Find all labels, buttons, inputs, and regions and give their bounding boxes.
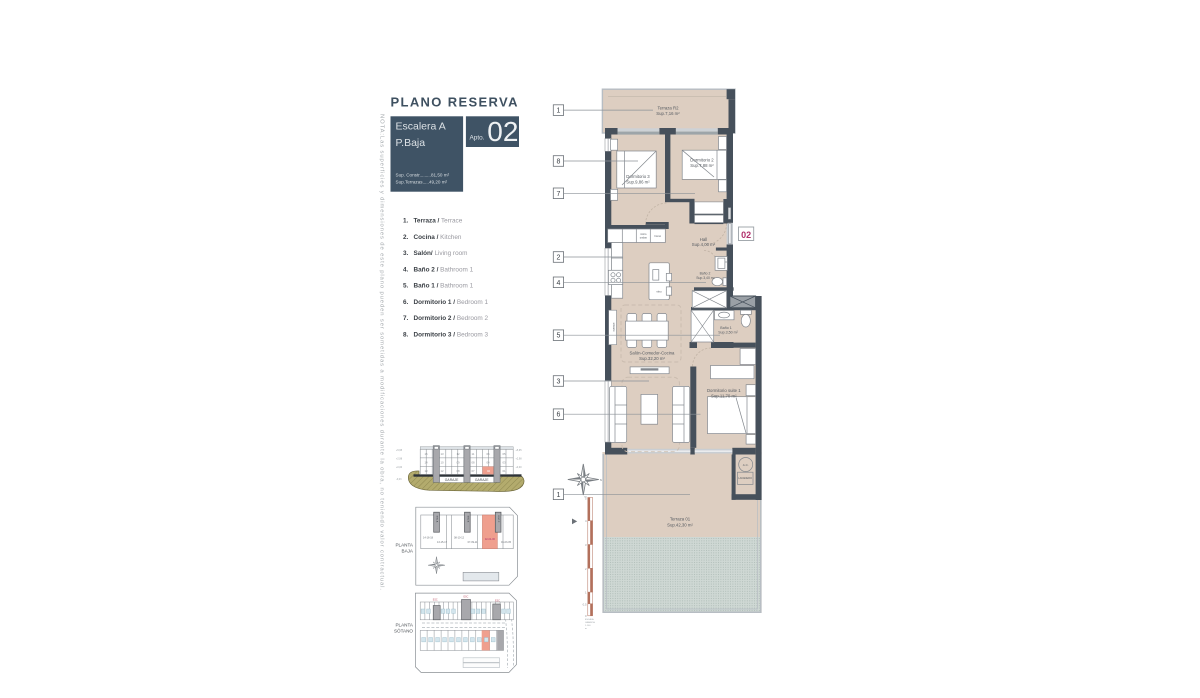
- svg-text:15: 15: [424, 452, 428, 456]
- svg-text:Terraza 01: Terraza 01: [670, 517, 691, 522]
- svg-text:ESC B: ESC B: [466, 516, 468, 523]
- svg-text:ESC: ESC: [463, 596, 468, 599]
- svg-text:Baño 1 / Bathroom 1: Baño 1 / Bathroom 1: [414, 283, 474, 290]
- svg-text:Dormitorio 2: Dormitorio 2: [690, 158, 714, 163]
- svg-text:Terraza R2: Terraza R2: [657, 106, 679, 111]
- svg-text:+5,95: +5,95: [516, 449, 523, 452]
- svg-text:PLANO RESERVA: PLANO RESERVA: [391, 94, 519, 109]
- svg-text:01: 01: [502, 469, 506, 473]
- svg-text:11: 11: [472, 452, 475, 456]
- svg-text:Sup.42,30 m²: Sup.42,30 m²: [667, 523, 693, 528]
- svg-text:P.Baja: P.Baja: [396, 137, 426, 149]
- svg-text:LAVADERO: LAVADERO: [738, 476, 752, 480]
- svg-text:3: 3: [556, 379, 560, 386]
- svg-text:08: 08: [471, 461, 475, 465]
- svg-text:14-16-18: 14-16-18: [423, 537, 434, 540]
- svg-text:5: 5: [556, 333, 560, 340]
- svg-text:Sup.3,50 m²: Sup.3,50 m²: [718, 330, 738, 334]
- svg-text:A.C.: A.C.: [743, 463, 749, 467]
- svg-text:07-09-11: 07-09-11: [468, 541, 478, 544]
- svg-text:Salón-Comedor-Cocina: Salón-Comedor-Cocina: [630, 351, 676, 356]
- svg-text:ESC A: ESC A: [436, 516, 439, 523]
- svg-text:Dormitorio 3 / Bedroom 3: Dormitorio 3 / Bedroom 3: [414, 332, 489, 339]
- svg-text:armario: armario: [612, 323, 616, 332]
- svg-text:PLANTA: PLANTA: [395, 543, 413, 548]
- svg-text:ESCALA: ESCALA: [585, 618, 594, 621]
- svg-text:Cocina / Kitchen: Cocina / Kitchen: [414, 234, 462, 241]
- svg-text:Salón/ Living room: Salón/ Living room: [414, 250, 468, 257]
- svg-text:5.: 5.: [403, 283, 409, 290]
- svg-text:12: 12: [456, 452, 460, 456]
- svg-text:m: m: [585, 628, 587, 630]
- svg-text:Terraza / Terrace: Terraza / Terrace: [414, 218, 463, 225]
- svg-text:Dormitorio 1 / Bedroom 1: Dormitorio 1 / Bedroom 1: [414, 299, 489, 306]
- svg-text:1: 1: [556, 492, 560, 499]
- svg-text:ondas: ondas: [640, 235, 648, 239]
- svg-text:Sup. Constr.........81,50 m²: Sup. Constr.........81,50 m²: [396, 173, 450, 178]
- svg-text:14: 14: [424, 461, 428, 465]
- svg-text:7.: 7.: [403, 315, 409, 322]
- svg-text:Dormitorio suite 1: Dormitorio suite 1: [707, 388, 741, 393]
- svg-text:N: N: [600, 478, 602, 482]
- svg-text:Baño 1: Baño 1: [720, 326, 731, 330]
- svg-text:13: 13: [440, 452, 444, 456]
- svg-text:Sup.4,00 m²: Sup.4,00 m²: [692, 242, 716, 247]
- svg-text:ESC: ESC: [495, 600, 500, 603]
- svg-text:+2,98: +2,98: [516, 458, 523, 461]
- svg-text:13-15-17: 13-15-17: [437, 541, 448, 544]
- svg-text:03: 03: [502, 461, 506, 465]
- svg-text:Escalera A: Escalera A: [396, 121, 446, 133]
- svg-text:SÓTANO: SÓTANO: [394, 628, 413, 634]
- svg-text:02: 02: [741, 230, 751, 240]
- svg-text:Sup.11,70 m²: Sup.11,70 m²: [711, 394, 737, 399]
- svg-text:10: 10: [440, 461, 444, 465]
- svg-text:0,5: 0,5: [583, 602, 587, 606]
- svg-text:Dormitorio 2 / Bedroom 2: Dormitorio 2 / Bedroom 2: [414, 315, 489, 322]
- svg-text:-3,03: -3,03: [396, 478, 402, 481]
- svg-text:Sup.9,86 m²: Sup.9,86 m²: [626, 180, 650, 185]
- svg-text:Sup.7,88 m²: Sup.7,88 m²: [690, 163, 714, 168]
- svg-text:7: 7: [556, 191, 560, 198]
- svg-text:02-04-06: 02-04-06: [485, 538, 496, 541]
- svg-text:GARAJE: GARAJE: [445, 478, 459, 482]
- svg-text:horno: horno: [654, 234, 661, 238]
- svg-text:08: 08: [456, 469, 460, 473]
- svg-text:3.: 3.: [403, 250, 409, 257]
- svg-text:ESC C: ESC C: [497, 516, 499, 523]
- svg-text:6.: 6.: [403, 299, 409, 306]
- svg-text:1: 1: [556, 108, 560, 115]
- svg-text:GRAFICA: GRAFICA: [585, 621, 595, 624]
- svg-text:4: 4: [556, 280, 560, 287]
- svg-text:ESC: ESC: [433, 599, 438, 602]
- svg-text:02: 02: [487, 116, 518, 147]
- svg-text:Sup.3,40 m²: Sup.3,40 m²: [696, 276, 715, 280]
- svg-text:8.: 8.: [403, 332, 409, 339]
- svg-text:+0,00: +0,00: [516, 466, 523, 469]
- svg-text:BAJA: BAJA: [402, 549, 414, 554]
- svg-text:8: 8: [556, 159, 560, 166]
- svg-text:1:100: 1:100: [585, 625, 591, 627]
- svg-text:04: 04: [486, 461, 490, 465]
- svg-text:+5,95: +5,95: [396, 449, 403, 452]
- svg-text:+0,00: +0,00: [396, 466, 403, 469]
- svg-text:6: 6: [556, 412, 560, 419]
- svg-text:GARAJE: GARAJE: [475, 478, 489, 482]
- svg-text:Apto.: Apto.: [470, 134, 485, 141]
- svg-text:Baño 2: Baño 2: [700, 272, 711, 276]
- svg-text:Dormitorio 3: Dormitorio 3: [626, 174, 650, 179]
- svg-text:2: 2: [556, 255, 560, 262]
- svg-text:13: 13: [424, 469, 428, 473]
- svg-text:12: 12: [440, 469, 444, 473]
- svg-text:PLANTA: PLANTA: [395, 623, 413, 628]
- svg-text:Sup.Terrazas.....49,20 m²: Sup.Terrazas.....49,20 m²: [396, 180, 448, 185]
- svg-text:06: 06: [486, 452, 490, 456]
- svg-text:vitro: vitro: [656, 290, 662, 294]
- svg-text:Baño 2 / Bathroom 1: Baño 2 / Bathroom 1: [414, 266, 474, 273]
- svg-text:NOTA:Las superficies y dimensi: NOTA:Las superficies y dimensiones de es…: [379, 114, 385, 590]
- svg-text:micro: micro: [640, 232, 647, 236]
- svg-text:07: 07: [471, 469, 475, 473]
- svg-text:01-03-05: 01-03-05: [501, 541, 512, 544]
- svg-text:02: 02: [487, 469, 491, 473]
- svg-text:09: 09: [456, 461, 460, 465]
- svg-text:4.: 4.: [403, 266, 409, 273]
- svg-text:+2,98: +2,98: [396, 458, 403, 461]
- svg-text:2.: 2.: [403, 234, 409, 241]
- svg-text:05: 05: [502, 452, 506, 456]
- svg-text:Sup.32,20 m²: Sup.32,20 m²: [639, 356, 665, 361]
- svg-text:1.: 1.: [403, 218, 409, 225]
- svg-text:08-10-12: 08-10-12: [454, 537, 465, 540]
- svg-text:Sup.7,16 m²: Sup.7,16 m²: [656, 111, 680, 116]
